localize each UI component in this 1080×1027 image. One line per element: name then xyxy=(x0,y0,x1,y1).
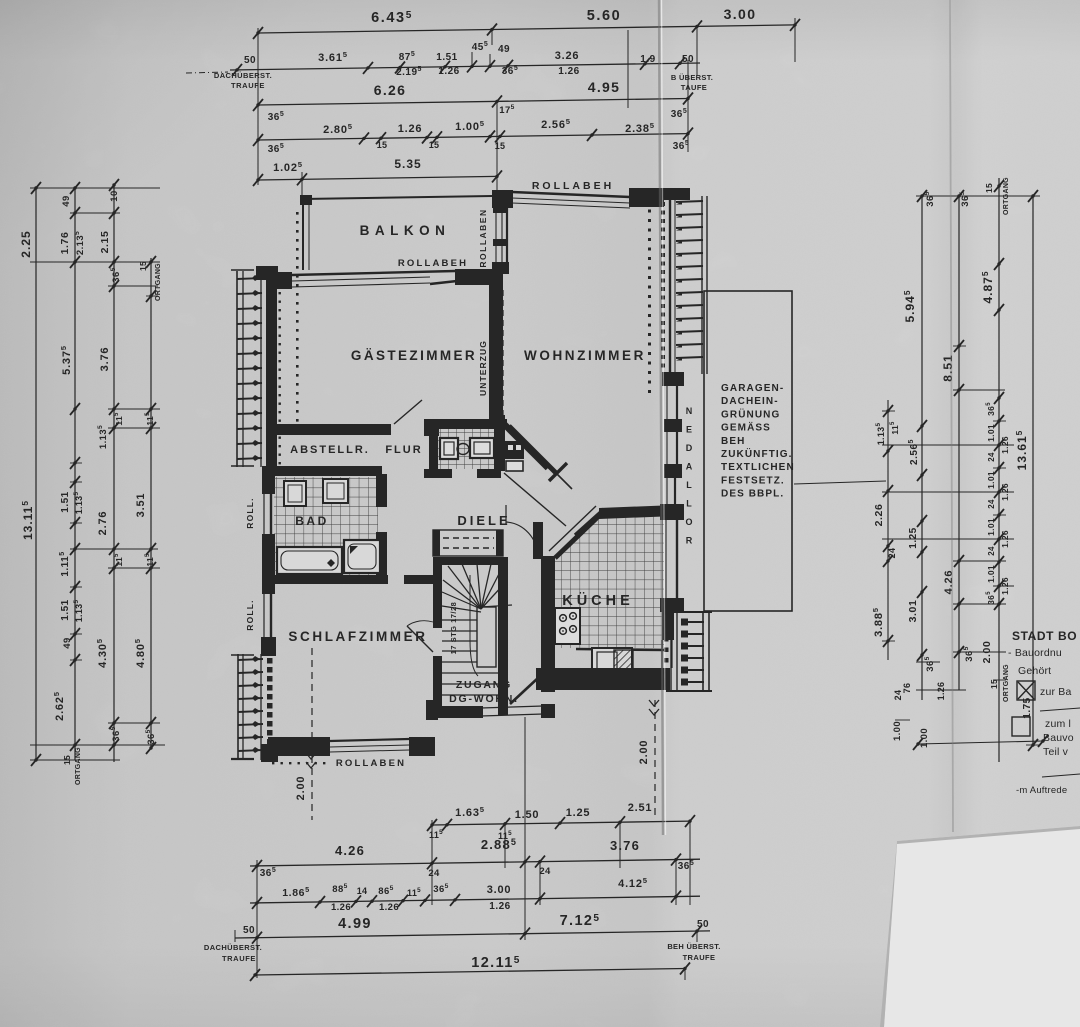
svg-text:DACHEIN-: DACHEIN- xyxy=(721,396,779,407)
svg-text:13.615: 13.615 xyxy=(1014,430,1029,471)
svg-text:50: 50 xyxy=(243,925,255,936)
svg-text:2.51: 2.51 xyxy=(628,802,653,814)
svg-text:- Bauordnu: - Bauordnu xyxy=(1008,647,1062,659)
svg-text:24: 24 xyxy=(987,452,996,462)
svg-text:TEXTLICHEN: TEXTLICHEN xyxy=(721,462,795,473)
svg-text:DACHÜBERST.: DACHÜBERST. xyxy=(204,943,262,952)
svg-text:UNTERZUG: UNTERZUG xyxy=(478,340,488,396)
svg-text:ROLLABEH: ROLLABEH xyxy=(398,258,468,269)
svg-text:49: 49 xyxy=(498,44,510,55)
svg-text:ROLLABEN: ROLLABEN xyxy=(478,208,488,267)
svg-text:O: O xyxy=(685,517,692,527)
svg-text:3.01: 3.01 xyxy=(907,600,919,623)
svg-text:3.51: 3.51 xyxy=(135,493,147,518)
svg-text:3.00: 3.00 xyxy=(724,6,757,22)
svg-text:ROLLABEN: ROLLABEN xyxy=(336,758,406,769)
svg-text:1.26: 1.26 xyxy=(438,66,459,77)
svg-text:3.26: 3.26 xyxy=(555,50,580,62)
svg-text:24: 24 xyxy=(539,866,551,877)
svg-text:5.35: 5.35 xyxy=(394,157,421,171)
svg-text:49: 49 xyxy=(62,637,73,648)
svg-text:24: 24 xyxy=(987,499,996,509)
svg-text:1.51: 1.51 xyxy=(436,52,457,63)
svg-text:DACHÜBERST.: DACHÜBERST. xyxy=(214,71,272,80)
svg-text:1.51: 1.51 xyxy=(60,491,71,512)
svg-text:1.26: 1.26 xyxy=(398,123,423,135)
svg-text:-m Auftrede: -m Auftrede xyxy=(1016,785,1067,796)
svg-text:R: R xyxy=(686,536,693,546)
svg-text:N: N xyxy=(686,406,693,416)
svg-text:TRAUFE: TRAUFE xyxy=(231,81,265,90)
svg-text:1.9: 1.9 xyxy=(640,54,655,65)
svg-text:BEH: BEH xyxy=(721,436,745,447)
svg-text:1.00: 1.00 xyxy=(919,728,930,748)
svg-text:GÄSTEZIMMER: GÄSTEZIMMER xyxy=(351,348,477,363)
svg-text:1.25: 1.25 xyxy=(566,807,591,819)
svg-text:DG-WOHN.: DG-WOHN. xyxy=(449,693,519,705)
svg-text:DES BBPL.: DES BBPL. xyxy=(721,489,784,500)
svg-text:5.60: 5.60 xyxy=(587,8,622,24)
svg-text:1.76: 1.76 xyxy=(59,232,71,255)
svg-text:24: 24 xyxy=(887,548,897,559)
svg-text:1.26: 1.26 xyxy=(558,66,579,77)
svg-text:A: A xyxy=(686,462,693,472)
svg-text:ORTGANG: ORTGANG xyxy=(155,263,162,301)
svg-text:14: 14 xyxy=(357,886,368,896)
svg-text:BEH ÜBERST.: BEH ÜBERST. xyxy=(667,942,720,951)
svg-text:ROLLABEH: ROLLABEH xyxy=(532,180,614,192)
svg-text:1.25: 1.25 xyxy=(908,527,919,548)
svg-text:2.25: 2.25 xyxy=(19,230,33,257)
svg-text:ABSTELLR.: ABSTELLR. xyxy=(290,444,370,456)
svg-text:76: 76 xyxy=(902,683,912,694)
svg-text:ZUKÜNFTIG.: ZUKÜNFTIG. xyxy=(721,447,793,460)
svg-text:TRAUFE: TRAUFE xyxy=(222,954,256,963)
svg-text:WOHNZIMMER: WOHNZIMMER xyxy=(524,348,646,363)
svg-text:1.26: 1.26 xyxy=(379,902,399,913)
svg-text:13.115: 13.115 xyxy=(20,500,35,540)
svg-text:15: 15 xyxy=(984,183,994,193)
svg-text:FESTSETZ.: FESTSETZ. xyxy=(721,475,785,486)
svg-text:TRAUFE: TRAUFE xyxy=(683,953,716,962)
svg-text:ORTGANG: ORTGANG xyxy=(1003,664,1010,702)
svg-text:L: L xyxy=(686,499,692,509)
svg-text:BAD: BAD xyxy=(295,514,329,528)
svg-text:1.26: 1.26 xyxy=(331,902,351,913)
svg-text:50: 50 xyxy=(697,919,709,930)
svg-text:17 STG 17/28: 17 STG 17/28 xyxy=(449,602,458,655)
svg-text:1.00: 1.00 xyxy=(892,721,903,741)
svg-text:zur Ba: zur Ba xyxy=(1040,686,1072,698)
svg-text:1.26: 1.26 xyxy=(489,901,510,912)
svg-text:GEMÄSS: GEMÄSS xyxy=(721,421,771,434)
svg-text:49: 49 xyxy=(61,195,72,206)
svg-text:2.00: 2.00 xyxy=(638,740,650,765)
svg-text:6.26: 6.26 xyxy=(374,82,406,98)
svg-text:1.01: 1.01 xyxy=(986,565,996,583)
svg-text:15: 15 xyxy=(989,679,999,689)
svg-text:2.00: 2.00 xyxy=(295,776,307,801)
svg-text:15: 15 xyxy=(377,140,388,150)
svg-text:B ÜBERST.: B ÜBERST. xyxy=(671,73,713,82)
svg-text:50: 50 xyxy=(244,55,256,66)
svg-text:3.76: 3.76 xyxy=(610,838,640,853)
svg-text:4.99: 4.99 xyxy=(338,916,372,932)
svg-text:Bauvo: Bauvo xyxy=(1043,732,1074,744)
svg-text:3.76: 3.76 xyxy=(99,347,111,372)
svg-text:FLUR: FLUR xyxy=(385,444,422,456)
svg-text:ROLL.: ROLL. xyxy=(245,497,255,529)
svg-text:4.26: 4.26 xyxy=(943,570,955,595)
svg-text:2.26: 2.26 xyxy=(873,504,885,527)
svg-text:15: 15 xyxy=(495,141,506,151)
svg-text:2.15: 2.15 xyxy=(99,231,111,254)
svg-text:15: 15 xyxy=(138,261,148,271)
svg-text:3.00: 3.00 xyxy=(487,884,512,896)
svg-text:TAUFE: TAUFE xyxy=(681,83,707,92)
svg-text:10: 10 xyxy=(109,190,120,201)
svg-text:DIELE: DIELE xyxy=(457,513,510,528)
svg-text:24: 24 xyxy=(987,546,996,556)
svg-text:12.115: 12.115 xyxy=(471,955,521,971)
svg-text:4.26: 4.26 xyxy=(335,843,365,858)
svg-text:D: D xyxy=(686,443,693,453)
svg-text:L: L xyxy=(686,480,692,490)
svg-text:2.76: 2.76 xyxy=(97,511,109,536)
svg-text:ORTGANG: ORTGANG xyxy=(75,747,82,785)
svg-text:ZUGANG: ZUGANG xyxy=(456,679,512,691)
svg-text:1.26: 1.26 xyxy=(936,682,946,701)
svg-text:zum l: zum l xyxy=(1045,718,1071,730)
svg-text:1.50: 1.50 xyxy=(515,809,540,821)
svg-text:1.51: 1.51 xyxy=(60,599,71,620)
svg-text:Teil v: Teil v xyxy=(1043,746,1069,758)
svg-text:15: 15 xyxy=(429,140,440,150)
svg-text:STADT BO: STADT BO xyxy=(1012,629,1077,643)
svg-text:4.95: 4.95 xyxy=(588,79,620,95)
svg-text:SCHLAFZIMMER: SCHLAFZIMMER xyxy=(288,629,427,644)
svg-text:1.01: 1.01 xyxy=(986,518,996,536)
svg-text:KÜCHE: KÜCHE xyxy=(562,592,634,609)
svg-text:Gehört: Gehört xyxy=(1018,665,1051,677)
svg-text:E: E xyxy=(686,425,692,435)
svg-text:BALKON: BALKON xyxy=(360,223,451,238)
svg-text:1.01: 1.01 xyxy=(986,471,996,489)
svg-text:8.51: 8.51 xyxy=(941,354,955,381)
svg-text:24: 24 xyxy=(428,868,440,879)
svg-text:GRÜNUNG: GRÜNUNG xyxy=(721,407,780,420)
svg-text:1.01: 1.01 xyxy=(986,424,996,442)
svg-text:GARAGEN-: GARAGEN- xyxy=(721,383,784,394)
svg-text:ROLL.: ROLL. xyxy=(245,599,255,631)
